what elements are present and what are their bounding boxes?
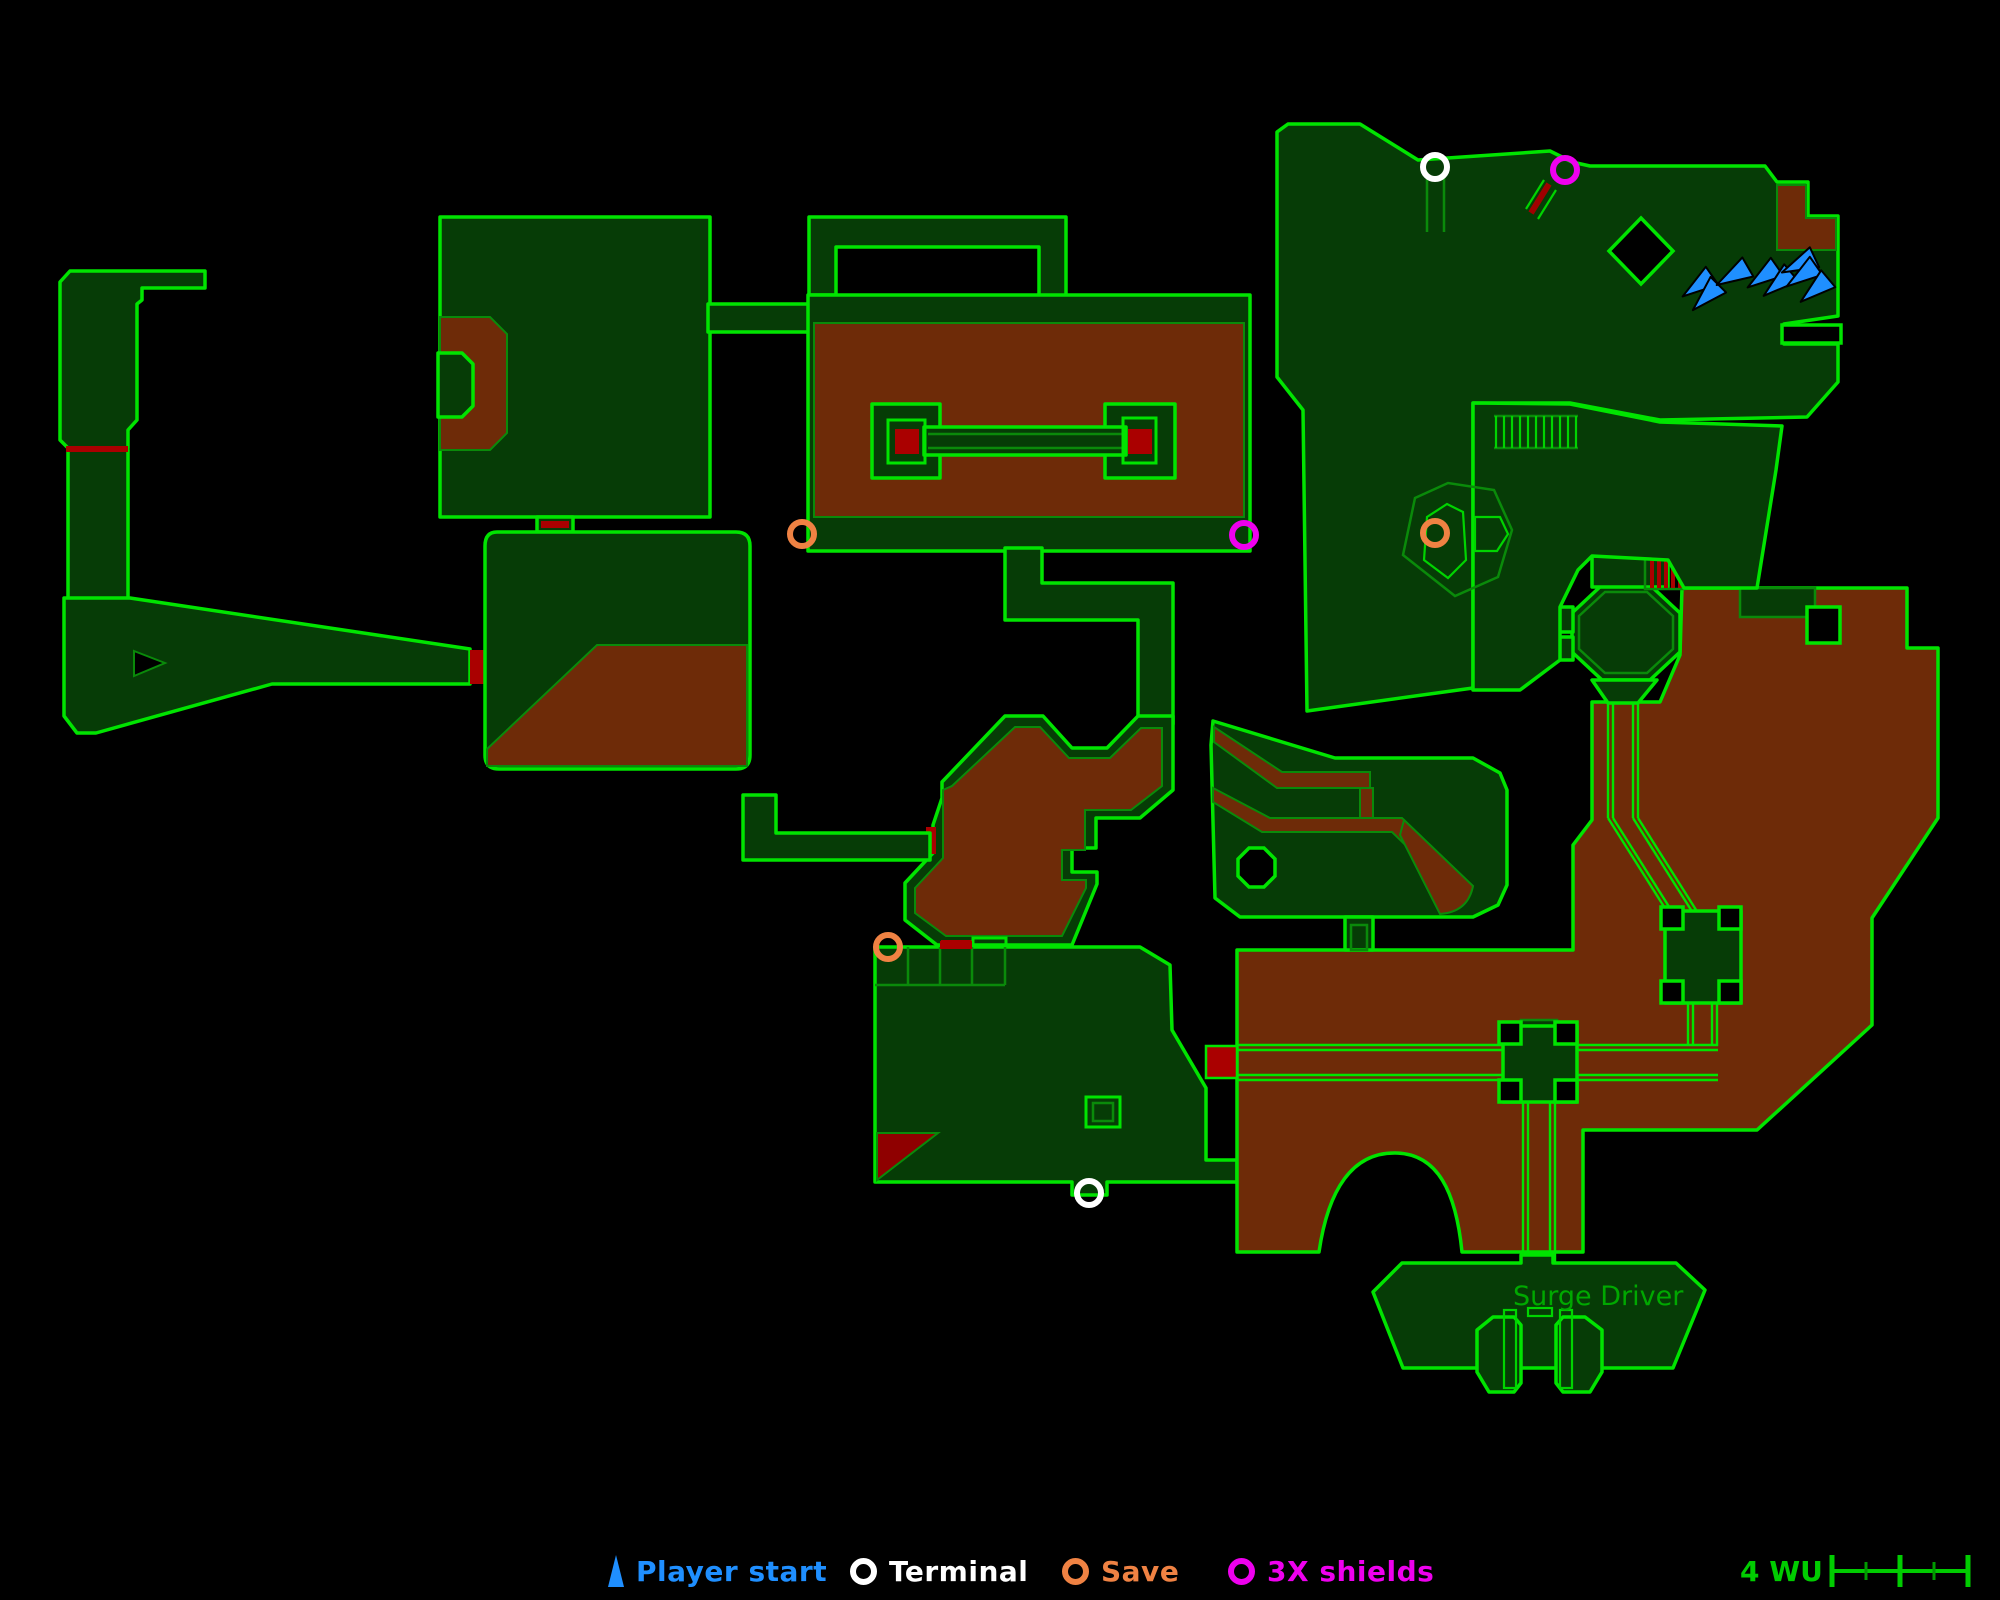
shields-icon bbox=[1228, 1558, 1255, 1585]
legend-item-shields: 3X shields bbox=[1228, 1550, 1434, 1592]
scale-bar: 4 WU bbox=[1740, 1550, 1971, 1592]
striped-room-stripe bbox=[1360, 788, 1373, 818]
legend-item-terminal: Terminal bbox=[850, 1550, 1028, 1592]
se-square-hole bbox=[1807, 607, 1840, 643]
junction-corner bbox=[1555, 1080, 1577, 1102]
platform-right-red bbox=[1128, 429, 1152, 454]
map-label: Surge Driver bbox=[1513, 1281, 1684, 1312]
legend-label: Terminal bbox=[889, 1555, 1028, 1588]
legend-item-save: Save bbox=[1062, 1550, 1179, 1592]
octagon-neck bbox=[1592, 680, 1657, 703]
junction-corner bbox=[1661, 907, 1683, 929]
west-mid-corridor bbox=[743, 795, 930, 860]
junction-corner bbox=[1719, 981, 1741, 1003]
west-door-red bbox=[470, 650, 484, 684]
legend-label: Player start bbox=[636, 1555, 827, 1588]
junction-corner bbox=[1555, 1022, 1577, 1044]
legend-item-player-start: Player start bbox=[608, 1550, 827, 1592]
player-start-icon bbox=[608, 1555, 624, 1587]
nw-door-red bbox=[66, 446, 128, 452]
junction-corner bbox=[1661, 981, 1683, 1003]
scale-label: 4 WU bbox=[1740, 1555, 1823, 1588]
cave-brown bbox=[915, 727, 1162, 936]
junction-corner bbox=[1499, 1080, 1521, 1102]
nw-east-corridor bbox=[708, 304, 810, 332]
legend-label: Save bbox=[1101, 1555, 1179, 1588]
sw-north-door-red bbox=[940, 941, 972, 949]
nw-room-nook bbox=[438, 353, 473, 417]
terminal-icon bbox=[850, 1558, 877, 1585]
save-icon bbox=[1062, 1558, 1089, 1585]
junction-corner bbox=[1499, 1022, 1521, 1044]
ne-brown-notch bbox=[1777, 185, 1836, 250]
junction-corner bbox=[1719, 907, 1741, 929]
platform-left-red bbox=[895, 429, 919, 454]
striped-room-octagon-hole bbox=[1238, 848, 1275, 887]
central-south-corridor bbox=[1005, 548, 1173, 724]
surge-pillar bbox=[1477, 1317, 1521, 1392]
nw-corridor bbox=[68, 450, 128, 612]
scale-ruler bbox=[1829, 1550, 1971, 1592]
legend-label: 3X shields bbox=[1267, 1555, 1434, 1588]
ne-slot bbox=[1782, 325, 1841, 343]
striped-room-south-door bbox=[1345, 917, 1373, 950]
octagon-room bbox=[1572, 585, 1680, 680]
se-green-strip bbox=[1740, 588, 1815, 617]
nw-hook-room bbox=[60, 271, 205, 448]
central-bridge bbox=[924, 427, 1126, 455]
surge-pillar bbox=[1556, 1317, 1602, 1392]
nw-rooms-door-red bbox=[541, 521, 569, 528]
track-door-red bbox=[1206, 1046, 1237, 1078]
west-y-corridor bbox=[64, 598, 470, 733]
map-canvas[interactable]: Surge Driver bbox=[0, 0, 2000, 1600]
